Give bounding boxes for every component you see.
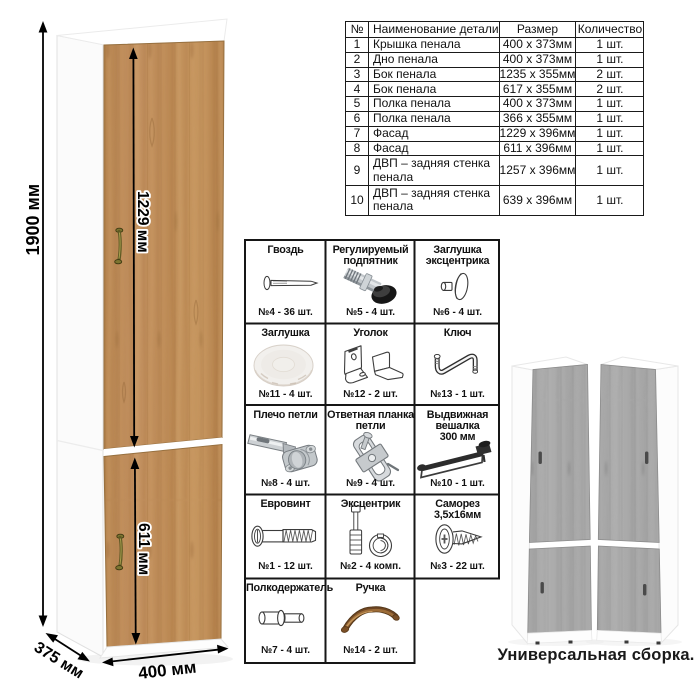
svg-text:1229 мм: 1229 мм <box>134 191 151 253</box>
svg-text:375 мм: 375 мм <box>31 639 86 682</box>
svg-text:611 мм: 611 мм <box>135 523 152 575</box>
svg-text:1900 мм: 1900 мм <box>23 184 43 256</box>
